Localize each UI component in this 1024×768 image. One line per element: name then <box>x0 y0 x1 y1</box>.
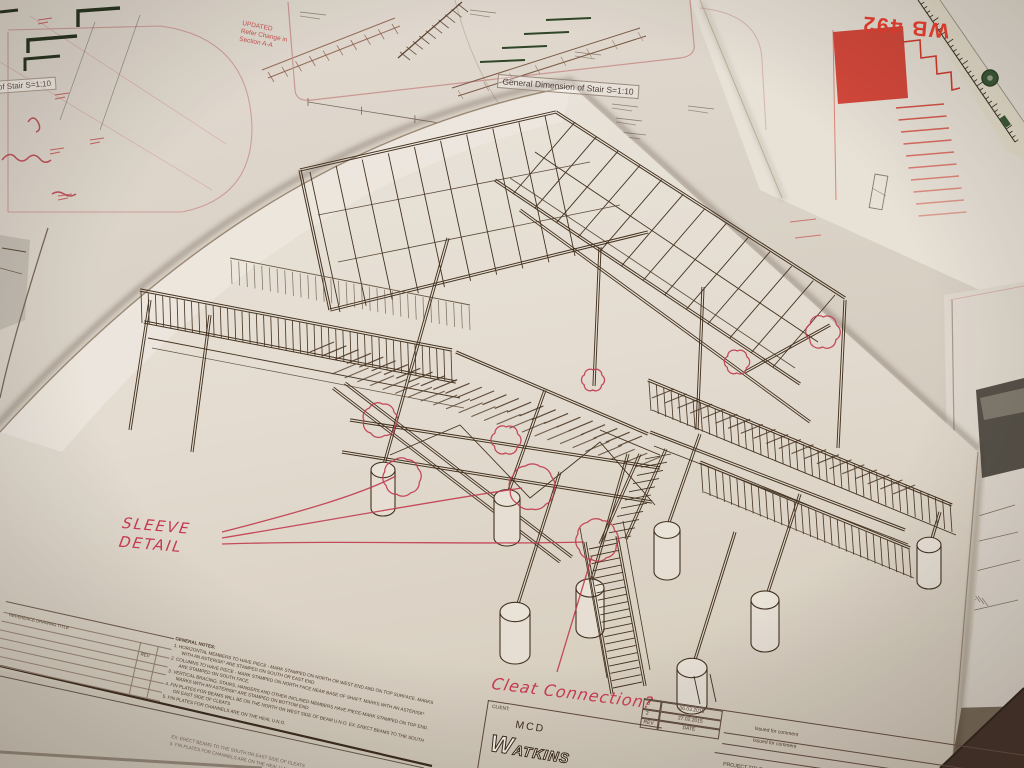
client-label: CLIENT: <box>492 705 510 713</box>
sleeve-detail-annotation: SLEEVE DETAIL <box>117 514 192 557</box>
photo-of-structural-drawings: General Dimension of Stair S=1:10 Genera… <box>0 0 1024 768</box>
client-name: MCD <box>515 719 546 736</box>
rev-column-header: REV <box>138 651 150 658</box>
watkins-logo: WATKINS <box>488 730 572 768</box>
project-title-label: PROJECT TITLE: <box>723 761 764 768</box>
watkins-logo-text: ATKINS <box>512 742 571 767</box>
